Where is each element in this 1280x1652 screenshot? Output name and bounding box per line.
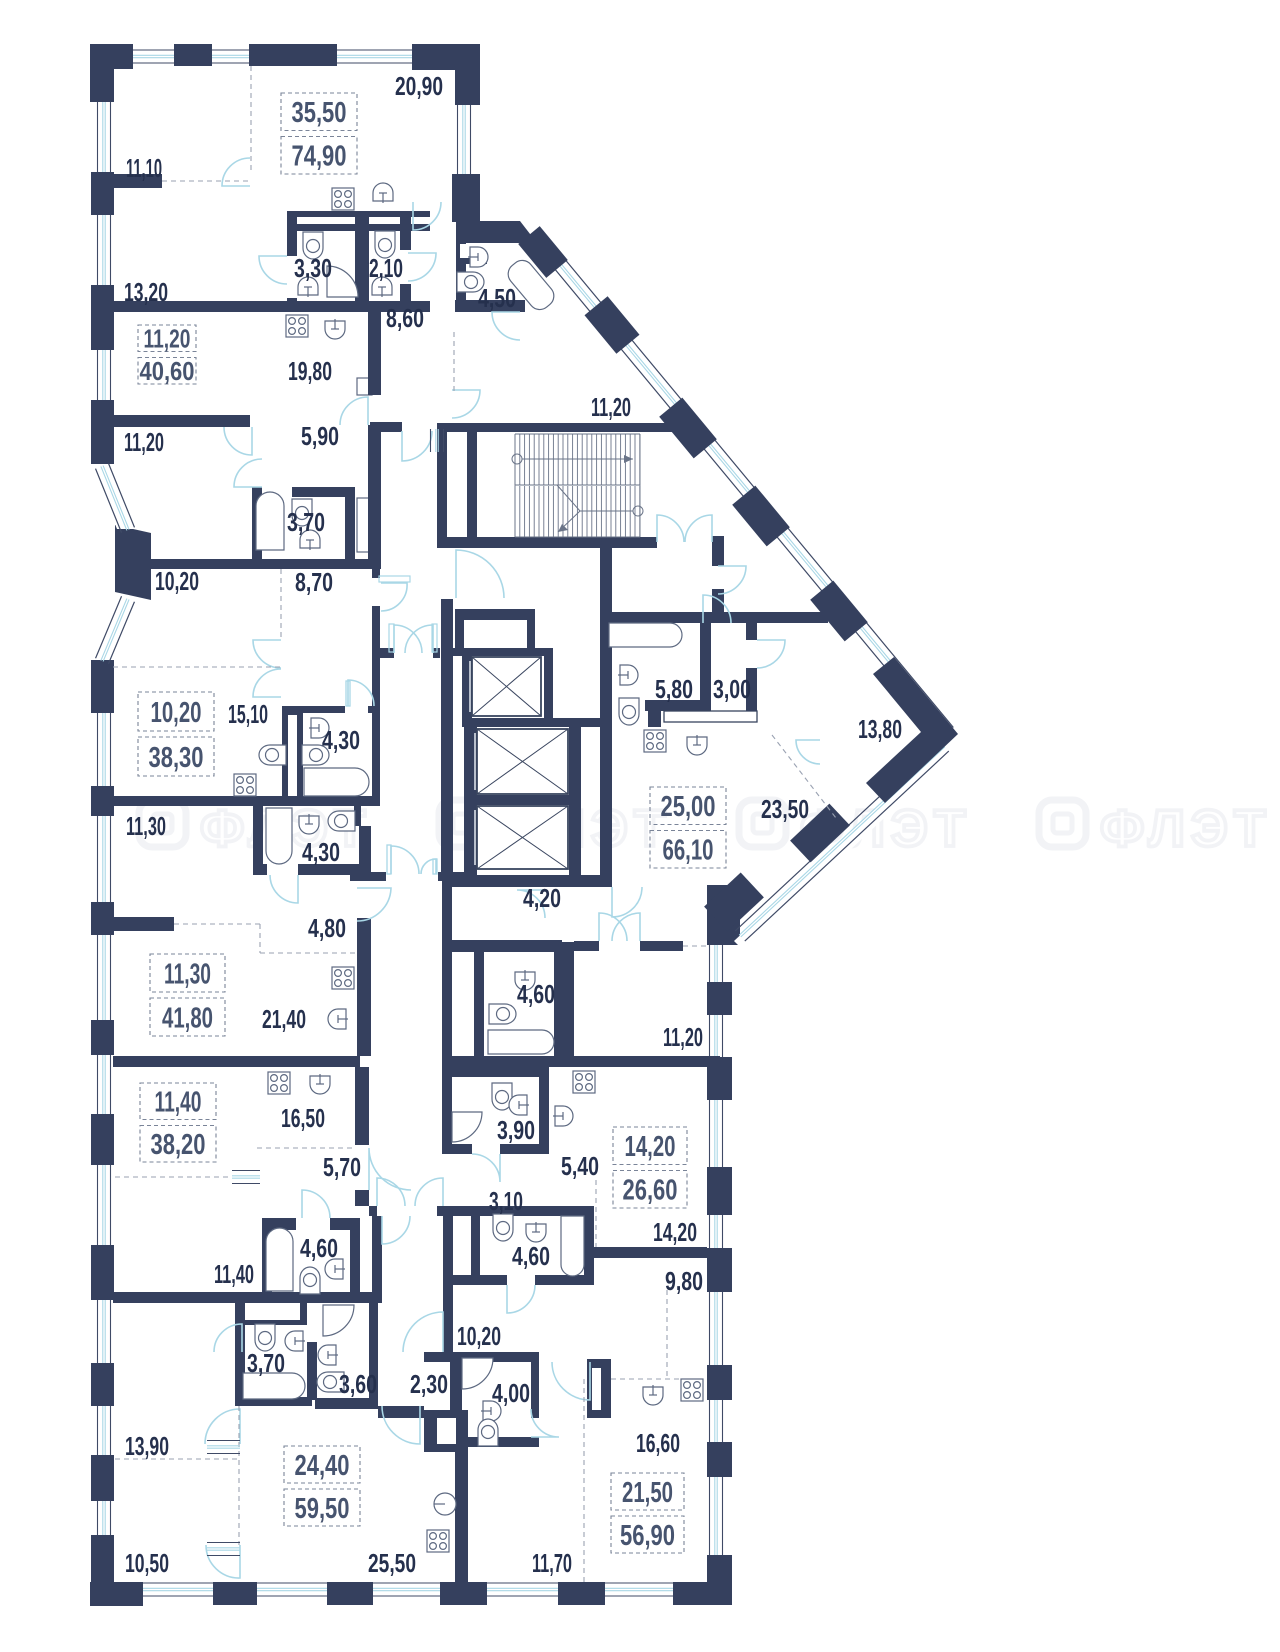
svg-text:56,90: 56,90 [620, 1520, 675, 1552]
svg-text:4,50: 4,50 [478, 283, 516, 313]
svg-text:10,20: 10,20 [155, 566, 199, 596]
svg-text:3,60: 3,60 [339, 1369, 377, 1399]
svg-text:59,50: 59,50 [295, 1493, 350, 1525]
svg-text:10,20: 10,20 [151, 697, 202, 729]
svg-text:4,20: 4,20 [523, 883, 561, 913]
svg-text:11,20: 11,20 [591, 392, 631, 422]
svg-text:19,80: 19,80 [288, 356, 332, 386]
svg-text:11,30: 11,30 [126, 811, 166, 841]
svg-text:14,20: 14,20 [653, 1217, 697, 1247]
svg-text:9,80: 9,80 [665, 1266, 703, 1296]
svg-text:5,90: 5,90 [301, 421, 339, 451]
svg-text:15,10: 15,10 [228, 699, 268, 729]
svg-text:20,90: 20,90 [395, 71, 443, 101]
svg-text:16,60: 16,60 [636, 1428, 680, 1458]
svg-text:4,80: 4,80 [308, 913, 346, 943]
svg-text:11,70: 11,70 [532, 1548, 572, 1578]
svg-text:25,50: 25,50 [368, 1548, 416, 1578]
svg-text:13,20: 13,20 [124, 277, 168, 307]
svg-text:21,40: 21,40 [262, 1004, 306, 1034]
svg-text:5,80: 5,80 [655, 674, 693, 704]
svg-text:5,40: 5,40 [561, 1151, 599, 1181]
svg-text:41,80: 41,80 [162, 1002, 213, 1034]
svg-text:3,90: 3,90 [497, 1115, 535, 1145]
svg-text:11,30: 11,30 [164, 958, 211, 990]
svg-text:5,70: 5,70 [323, 1152, 361, 1182]
svg-text:2,10: 2,10 [369, 253, 403, 283]
svg-text:3,00: 3,00 [713, 674, 751, 704]
svg-text:3,70: 3,70 [287, 507, 325, 537]
svg-text:23,50: 23,50 [761, 794, 809, 824]
svg-text:38,30: 38,30 [149, 742, 204, 774]
svg-text:10,20: 10,20 [457, 1321, 501, 1351]
svg-text:24,40: 24,40 [295, 1450, 350, 1482]
svg-text:4,60: 4,60 [300, 1233, 338, 1263]
svg-text:21,50: 21,50 [622, 1477, 673, 1509]
svg-text:4,60: 4,60 [512, 1241, 550, 1271]
svg-text:14,20: 14,20 [625, 1131, 676, 1163]
svg-text:8,60: 8,60 [386, 303, 424, 333]
svg-text:4,30: 4,30 [322, 725, 360, 755]
svg-text:ФЛЭТ: ФЛЭТ [1100, 800, 1272, 858]
svg-text:35,50: 35,50 [292, 97, 347, 129]
svg-text:3,30: 3,30 [294, 253, 332, 283]
svg-text:13,80: 13,80 [858, 714, 902, 744]
svg-text:13,90: 13,90 [125, 1431, 169, 1461]
svg-text:38,20: 38,20 [151, 1129, 206, 1161]
svg-text:16,50: 16,50 [281, 1103, 325, 1133]
svg-text:3,70: 3,70 [247, 1348, 285, 1378]
svg-text:74,90: 74,90 [292, 141, 347, 173]
svg-text:3,10: 3,10 [489, 1186, 523, 1216]
svg-text:11,10: 11,10 [126, 153, 162, 183]
svg-text:11,20: 11,20 [144, 324, 191, 354]
svg-text:10,50: 10,50 [125, 1548, 169, 1578]
svg-text:4,30: 4,30 [302, 837, 340, 867]
svg-text:40,60: 40,60 [140, 356, 195, 386]
svg-text:2,30: 2,30 [410, 1369, 448, 1399]
svg-text:8,70: 8,70 [295, 567, 333, 597]
svg-text:4,60: 4,60 [517, 979, 555, 1009]
svg-text:26,60: 26,60 [623, 1175, 678, 1207]
svg-text:11,20: 11,20 [124, 427, 164, 457]
svg-text:11,40: 11,40 [214, 1259, 254, 1289]
svg-text:11,20: 11,20 [663, 1022, 703, 1052]
svg-text:11,40: 11,40 [155, 1087, 202, 1119]
svg-text:25,00: 25,00 [661, 791, 716, 823]
svg-text:4,00: 4,00 [492, 1378, 530, 1408]
svg-text:66,10: 66,10 [663, 835, 714, 867]
